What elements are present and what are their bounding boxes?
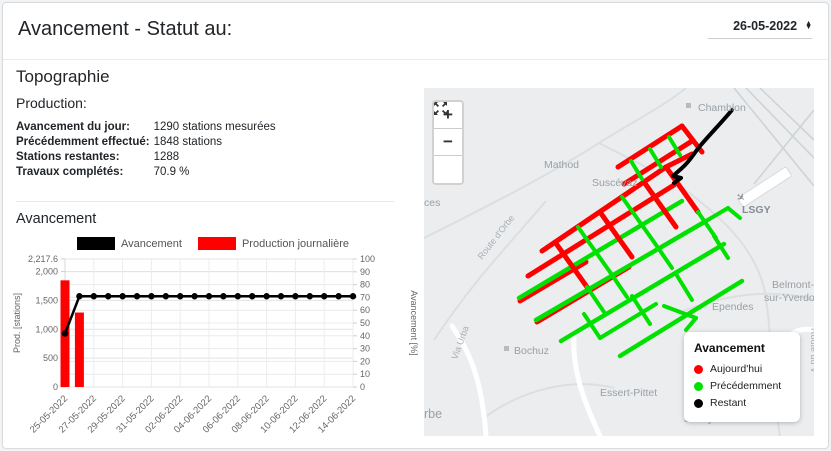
date-select[interactable]: 26-05-2022 ▲▼ [708, 19, 812, 39]
map-label-bochuz: Bochuz [514, 345, 549, 357]
fullscreen-icon [434, 102, 447, 115]
map-label-belmont-2: sur-Yverdon [764, 292, 814, 304]
map-container[interactable]: Chamblon Mathod Suscévaz LSGY ✈ Route d'… [424, 88, 814, 436]
svg-text:1,000: 1,000 [35, 324, 58, 334]
map-legend-item-aujourdhui: Aujourd'hui [694, 363, 790, 375]
fullscreen-button[interactable] [434, 156, 462, 183]
red-dot-icon [694, 365, 703, 374]
stat-row-avancement-du-jour: Avancement du jour: 1290 stations mesuré… [16, 119, 276, 134]
section-title-topographie: Topographie [16, 67, 110, 87]
header-bar: Avancement - Statut au: 26-05-2022 ▲▼ [3, 3, 828, 60]
production-stats: Avancement du jour: 1290 stations mesuré… [16, 119, 276, 179]
production-label: Production: [16, 95, 87, 111]
legend-item-avancement: Avancement [77, 237, 182, 250]
dashboard-card: Avancement - Statut au: 26-05-2022 ▲▼ To… [2, 2, 829, 449]
map-label-mathod: Mathod [544, 159, 579, 171]
svg-text:50: 50 [360, 318, 370, 328]
svg-text:90: 90 [360, 267, 370, 277]
svg-text:100: 100 [360, 254, 375, 264]
map-legend-label: Précédemment [710, 380, 781, 392]
map-legend: Avancement Aujourd'hui Précédemment Rest… [684, 332, 800, 422]
legend-label: Avancement [121, 238, 182, 250]
section-title-avancement: Avancement [16, 211, 96, 227]
stat-label: Stations restantes: [16, 149, 154, 164]
stat-label: Avancement du jour: [16, 119, 154, 134]
production-bar-swatch [198, 237, 236, 250]
svg-text:0: 0 [360, 382, 365, 392]
stat-label: Précédemment effectué: [16, 134, 154, 149]
svg-text:20: 20 [360, 356, 370, 366]
black-dot-icon [694, 399, 703, 408]
svg-text:2,000: 2,000 [35, 267, 58, 277]
divider [16, 201, 394, 202]
map-label-chamblon: Chamblon [698, 102, 746, 114]
map-label-ependes: Ependes [712, 301, 753, 313]
legend-label: Production journalière [242, 238, 349, 250]
poi-icon [504, 346, 509, 351]
avancement-chart: 05001,0001,5002,0002,217.601020304050607… [7, 253, 419, 449]
green-dot-icon [694, 382, 703, 391]
svg-text:500: 500 [43, 353, 58, 363]
stat-value: 1848 stations [154, 134, 276, 149]
date-select-value: 26-05-2022 [733, 19, 797, 33]
svg-text:30: 30 [360, 344, 370, 354]
map-legend-title: Avancement [694, 341, 790, 355]
avancement-line-swatch [77, 237, 115, 250]
legend-item-production: Production journalière [198, 237, 349, 250]
svg-text:Avancement [%]: Avancement [%] [409, 290, 419, 355]
svg-text:40: 40 [360, 331, 370, 341]
svg-text:0: 0 [53, 382, 58, 392]
map-legend-item-restant: Restant [694, 397, 790, 409]
map-label-essert-pittet: Essert-Pittet [600, 387, 657, 399]
map-legend-label: Restant [710, 397, 746, 409]
map-label-route-du-v: Route du V [809, 328, 814, 373]
map-label-lsgy: LSGY [742, 204, 771, 216]
zoom-out-button[interactable]: − [434, 129, 462, 156]
svg-text:60: 60 [360, 305, 370, 315]
stat-value: 70.9 % [154, 164, 276, 179]
chart-legend: Avancement Production journalière [7, 237, 419, 250]
svg-text:Prod. [stations]: Prod. [stations] [12, 293, 22, 353]
map-label-belmont-1: Belmont- [772, 279, 814, 291]
map-legend-item-precedemment: Précédemment [694, 380, 790, 392]
svg-text:80: 80 [360, 280, 370, 290]
stat-value: 1290 stations mesurées [154, 119, 276, 134]
page-title: Avancement - Statut au: [18, 18, 232, 41]
svg-text:10: 10 [360, 369, 370, 379]
svg-text:2,217.6: 2,217.6 [28, 254, 58, 264]
map-legend-label: Aujourd'hui [710, 363, 762, 375]
stat-row-restantes: Stations restantes: 1288 [16, 149, 276, 164]
map-zoom-controls: + − [432, 100, 464, 185]
stat-label: Travaux complétés: [16, 164, 154, 179]
dashboard-page: Avancement - Statut au: 26-05-2022 ▲▼ To… [0, 0, 831, 451]
svg-text:1,500: 1,500 [35, 295, 58, 305]
stat-row-travaux: Travaux complétés: 70.9 % [16, 164, 276, 179]
poi-icon [686, 103, 691, 108]
map-label-suscevaz: Suscévaz [592, 177, 638, 189]
select-arrows-icon: ▲▼ [805, 22, 812, 30]
map-label-orbe: rbe [424, 407, 442, 421]
stat-row-precedemment: Précédemment effectué: 1848 stations [16, 134, 276, 149]
stat-value: 1288 [154, 149, 276, 164]
svg-text:70: 70 [360, 292, 370, 302]
map-label-ces: ces [424, 197, 440, 209]
